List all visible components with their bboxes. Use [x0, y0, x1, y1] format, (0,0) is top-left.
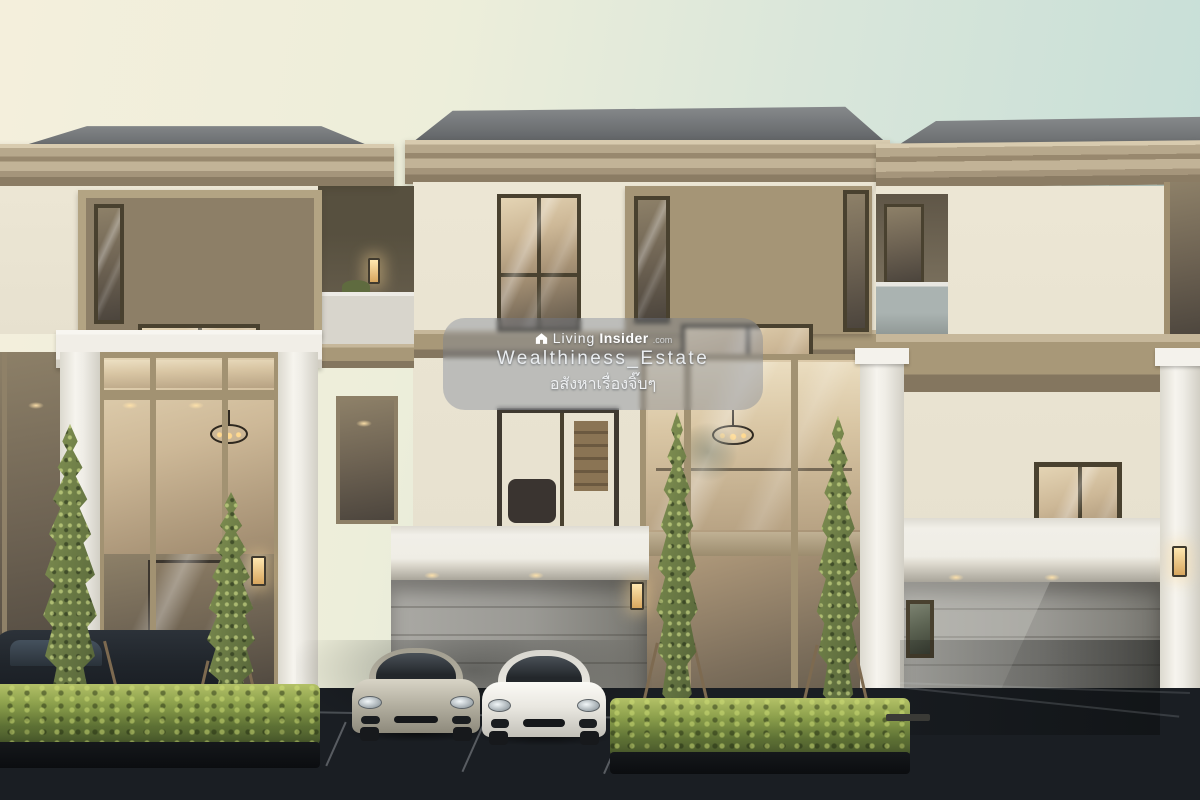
- porch-ceiling-glow: [28, 402, 44, 409]
- left-cornice: [0, 144, 394, 186]
- right-edge-window: [1164, 182, 1200, 338]
- porch-ceiling-glow: [188, 402, 204, 409]
- bay-pane-left: [634, 196, 670, 324]
- center-window-3f-slim: [843, 190, 869, 332]
- living-insider-logo: LivingInsider.com: [534, 331, 673, 346]
- car-intake: [361, 716, 380, 724]
- porsche-white: [482, 648, 606, 742]
- watermark-account-name: Wealthiness_Estate: [497, 348, 710, 370]
- window-mullion: [560, 413, 564, 527]
- living-insider-logo-icon: [534, 331, 549, 346]
- interior-glow: [356, 420, 372, 427]
- chandelier: [712, 410, 754, 462]
- recess-window: [884, 204, 924, 284]
- entry-transom-bar: [104, 390, 274, 400]
- watermark-thai-tagline: อสังหาเรื่องจิ๊บๆ: [550, 372, 656, 397]
- bay-pane-left: [94, 204, 124, 324]
- wall-lamp: [1172, 546, 1187, 577]
- porsche-champagne: [352, 646, 480, 738]
- car-wheel: [360, 727, 379, 741]
- car-wheel: [580, 731, 599, 745]
- pillar-cap: [855, 348, 909, 364]
- car-headlight: [488, 699, 511, 712]
- hedge-left: [0, 684, 320, 746]
- interior-shelf: [574, 421, 608, 491]
- car-grille: [523, 719, 565, 727]
- wall-lamp: [630, 582, 644, 610]
- right-balcony-glass-rail: [876, 282, 948, 338]
- center-cornice: [405, 140, 890, 184]
- garden-bench: [886, 714, 930, 721]
- pillar-cap: [1155, 348, 1200, 366]
- car-headlight: [577, 699, 600, 712]
- brand-insider: Insider: [599, 331, 648, 345]
- entry-mullion: [791, 360, 798, 705]
- car-wheel: [453, 727, 472, 741]
- hedge-center: [610, 698, 910, 758]
- porch-ceiling-glow: [122, 402, 138, 409]
- watermark-card: LivingInsider.com Wealthiness_Estate อสั…: [443, 318, 763, 410]
- brand-suffix: .com: [653, 336, 673, 345]
- brand-living: Living: [553, 331, 596, 345]
- chandelier: [210, 410, 248, 460]
- car-intake: [579, 719, 598, 727]
- terrace-band: [312, 344, 414, 368]
- right-balcony-recess: [876, 194, 948, 290]
- far-right-pillar: [1160, 352, 1200, 718]
- entry-right-pillar: [860, 352, 904, 718]
- car-headlight: [450, 696, 474, 709]
- right-cornice: [876, 140, 1200, 187]
- car-wheel: [489, 731, 508, 745]
- right-carport-beam: [876, 518, 1200, 582]
- right-floor-band: [876, 334, 1200, 392]
- car-intake: [491, 719, 510, 727]
- center-window-2f-open: [497, 408, 619, 532]
- chandelier-ring: [712, 425, 754, 446]
- center-window-3f-bay: [625, 186, 872, 334]
- left-side-window: [336, 396, 398, 524]
- car-headlight: [358, 696, 382, 709]
- hedge-planter-shadow: [0, 742, 320, 768]
- entry-transom-glass: [104, 360, 274, 388]
- interior-chair-silhouette: [508, 479, 556, 523]
- chandelier-ring: [210, 424, 248, 444]
- window-mullion: [501, 273, 577, 277]
- car-intake: [452, 716, 471, 724]
- center-window-3f-left: [497, 194, 581, 332]
- downlight-glow: [1044, 574, 1060, 581]
- downlight-glow: [948, 574, 964, 581]
- downlight-glow: [528, 572, 544, 579]
- left-window-bay: [78, 190, 322, 338]
- window-mullion: [537, 198, 541, 328]
- terrace-rail-wall: [312, 292, 414, 346]
- townhome-architectural-render: LivingInsider.com Wealthiness_Estate อสั…: [0, 0, 1200, 800]
- terrace-lamp: [368, 258, 380, 284]
- wall-lamp: [251, 556, 266, 586]
- hedge-planter-shadow: [610, 752, 910, 774]
- terrace-recess: [312, 186, 414, 346]
- downlight-glow: [424, 572, 440, 579]
- car-grille: [394, 716, 438, 723]
